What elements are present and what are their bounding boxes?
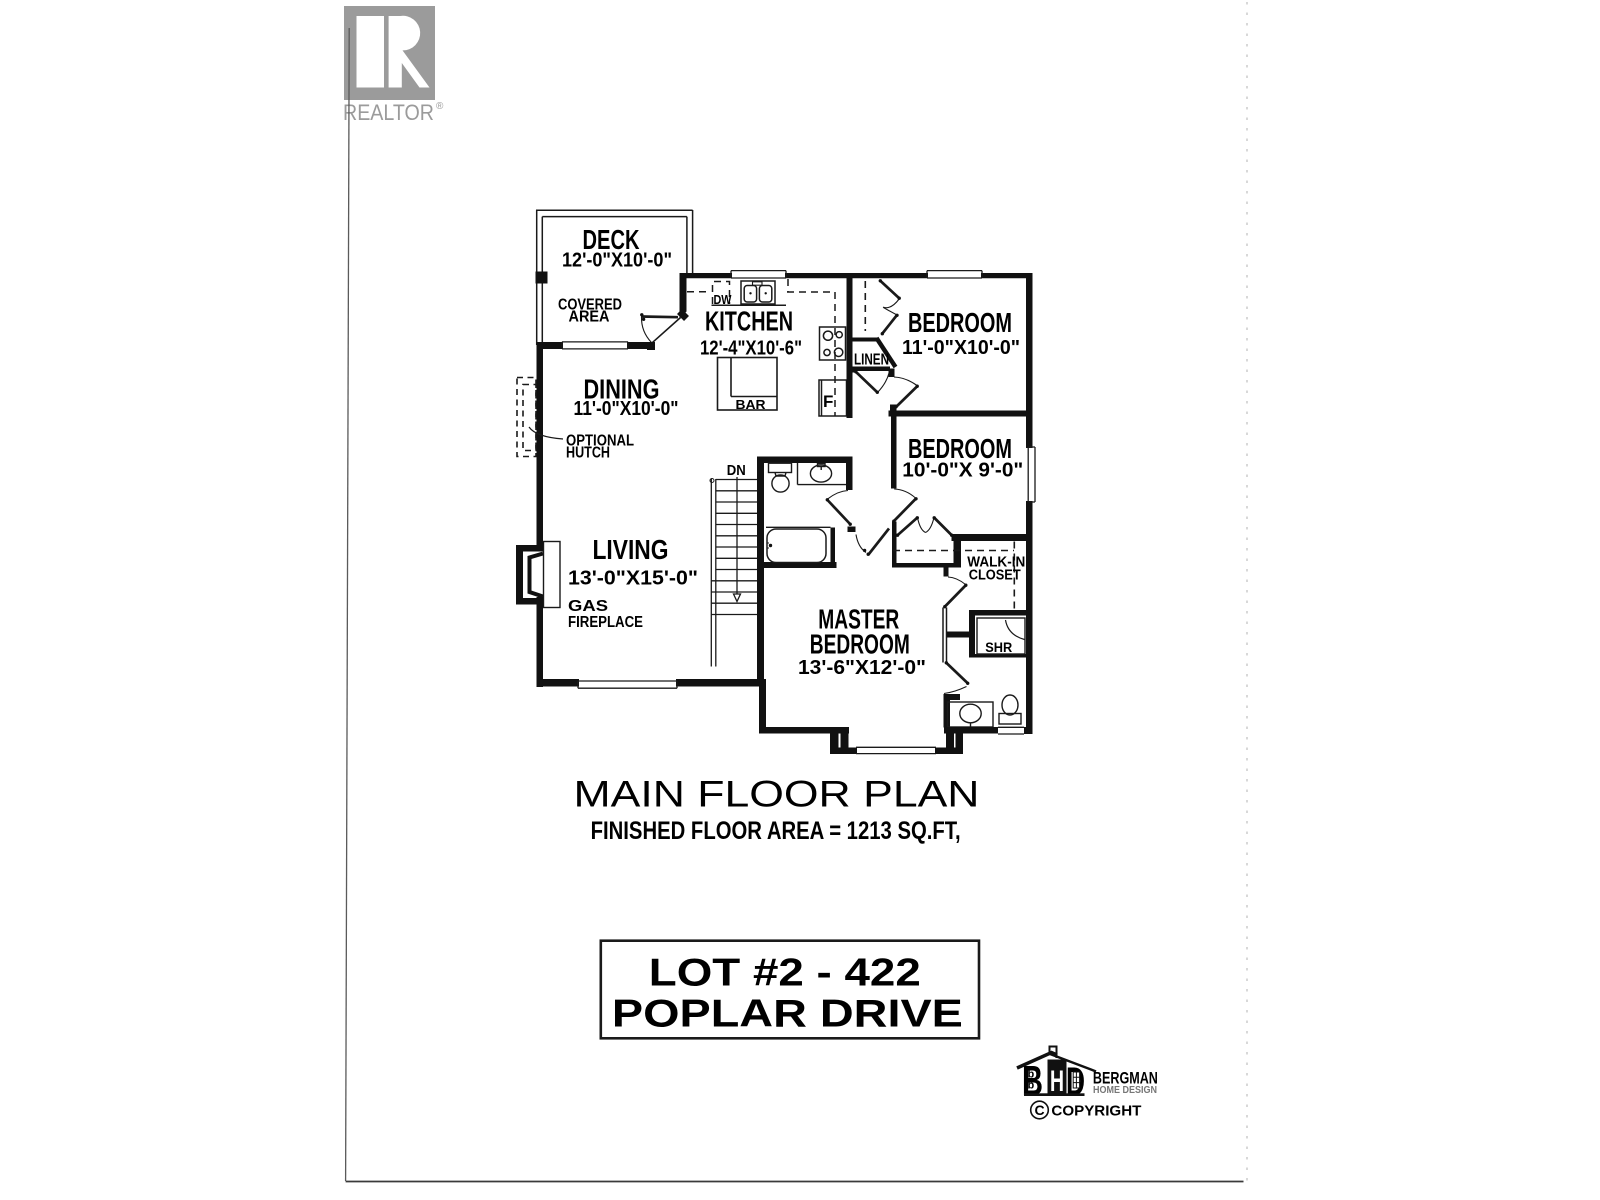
svg-text:H: H xyxy=(1050,1065,1064,1098)
svg-text:DN: DN xyxy=(727,462,746,479)
svg-text:13'-0"X15'-0": 13'-0"X15'-0" xyxy=(568,568,698,590)
svg-text:REALTOR: REALTOR xyxy=(343,100,434,125)
svg-text:11'-0"X10'-0": 11'-0"X10'-0" xyxy=(902,337,1020,359)
svg-text:F: F xyxy=(823,392,833,411)
svg-text:CLOSET: CLOSET xyxy=(969,568,1021,584)
svg-text:KITCHEN: KITCHEN xyxy=(705,306,793,337)
svg-text:POPLAR DRIVE: POPLAR DRIVE xyxy=(612,993,963,1036)
svg-text:11'-0"X10'-0": 11'-0"X10'-0" xyxy=(574,398,679,420)
svg-text:GAS: GAS xyxy=(568,598,608,615)
svg-text:BEDROOM: BEDROOM xyxy=(810,629,910,660)
svg-text:FINISHED FLOOR AREA = 1213 SQ.: FINISHED FLOOR AREA = 1213 SQ.FT, xyxy=(591,817,961,845)
svg-text:LOT #2 - 422: LOT #2 - 422 xyxy=(649,952,921,995)
svg-text:LIVING: LIVING xyxy=(593,534,669,565)
svg-text:13'-6"X12'-0": 13'-6"X12'-0" xyxy=(798,657,926,679)
svg-text:BEDROOM: BEDROOM xyxy=(908,307,1012,338)
svg-text:LINEN: LINEN xyxy=(854,352,889,369)
svg-text:DW: DW xyxy=(714,292,733,307)
svg-text:AREA: AREA xyxy=(569,309,610,326)
svg-text:10'-0"X 9'-0": 10'-0"X 9'-0" xyxy=(902,460,1023,482)
svg-text:COPYRIGHT: COPYRIGHT xyxy=(1051,1103,1141,1120)
svg-text:®: ® xyxy=(436,101,444,112)
svg-text:C: C xyxy=(1035,1102,1045,1118)
svg-text:BAR: BAR xyxy=(736,397,767,412)
svg-text:12'-0"X10'-0": 12'-0"X10'-0" xyxy=(562,250,672,272)
svg-text:HOME DESIGN: HOME DESIGN xyxy=(1093,1084,1157,1096)
svg-text:HUTCH: HUTCH xyxy=(566,445,610,462)
svg-text:b: b xyxy=(1028,1080,1035,1092)
svg-text:SHR: SHR xyxy=(985,639,1012,655)
svg-text:12'-4"X10'-6": 12'-4"X10'-6" xyxy=(700,338,802,360)
svg-text:FIREPLACE: FIREPLACE xyxy=(568,614,643,631)
svg-text:MAIN FLOOR PLAN: MAIN FLOOR PLAN xyxy=(574,774,980,815)
